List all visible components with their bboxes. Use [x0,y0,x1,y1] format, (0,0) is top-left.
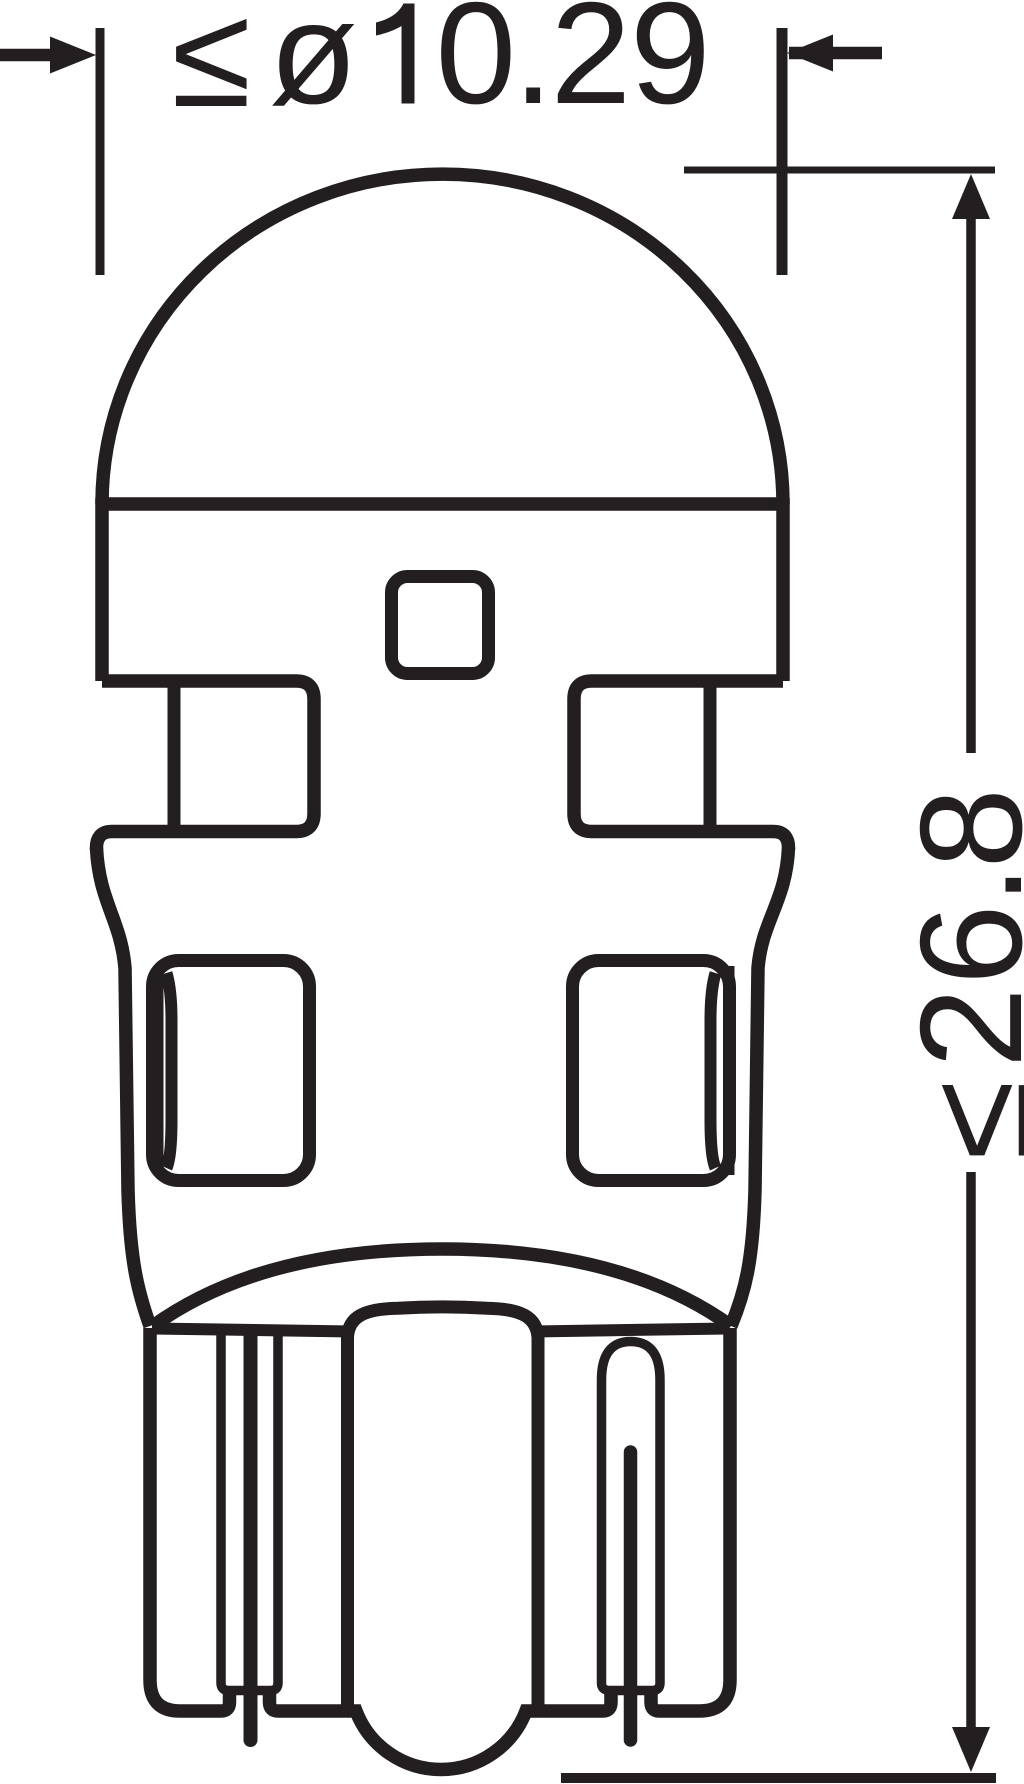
svg-text:.: . [513,0,553,134]
svg-text:≤: ≤ [898,1080,1024,1160]
svg-text:ø: ø [269,0,358,134]
svg-text:8: 8 [890,788,1024,869]
svg-text:0: 0 [436,0,517,134]
svg-text:9: 9 [630,0,711,134]
svg-text:≤: ≤ [172,0,252,137]
svg-text:6: 6 [890,904,1024,985]
svg-text:2: 2 [551,0,632,134]
svg-text:2: 2 [890,987,1024,1068]
svg-text:.: . [890,865,1024,905]
